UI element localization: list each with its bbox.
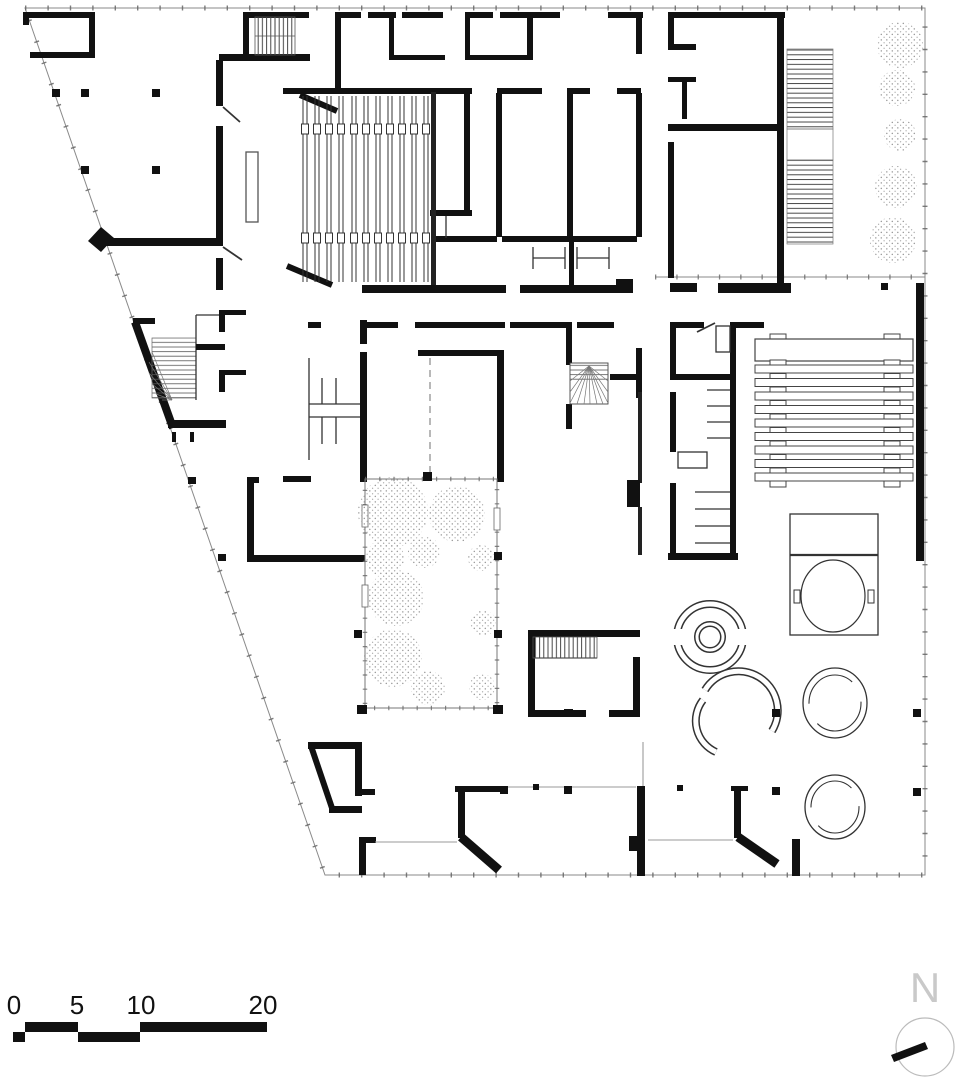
round-pools bbox=[803, 668, 867, 839]
floor-plan-sheet: 0 5 10 20 N bbox=[0, 0, 960, 1088]
exterior-boundary bbox=[25, 8, 925, 875]
auditorium-seating bbox=[302, 96, 430, 282]
long-bench-rows bbox=[755, 334, 913, 487]
left-winder-stair bbox=[133, 310, 246, 442]
tree-row bbox=[870, 22, 923, 263]
courtyard-garden bbox=[358, 477, 500, 708]
round-sofa-booth bbox=[664, 604, 756, 670]
scale-label-0: 0 bbox=[7, 990, 21, 1020]
central-winder-stair bbox=[570, 363, 608, 404]
floor-plan-drawing: 0 5 10 20 N bbox=[0, 0, 960, 1088]
courtyard-trees bbox=[358, 477, 496, 705]
scale-label-20: 20 bbox=[249, 990, 278, 1020]
exterior-step-ramp bbox=[787, 49, 833, 244]
scale-bar-segments bbox=[13, 1022, 267, 1042]
scale-bar: 0 5 10 20 bbox=[7, 990, 278, 1042]
north-indicator: N bbox=[891, 964, 954, 1076]
structural-walls bbox=[23, 12, 924, 876]
square-spa-with-tub bbox=[790, 514, 878, 635]
south-stair bbox=[533, 637, 597, 658]
northwest-stair bbox=[255, 17, 295, 55]
scale-label-10: 10 bbox=[127, 990, 156, 1020]
scale-label-5: 5 bbox=[70, 990, 84, 1020]
north-label: N bbox=[910, 964, 940, 1011]
curved-benches bbox=[696, 671, 778, 752]
thin-partitions bbox=[223, 107, 733, 842]
